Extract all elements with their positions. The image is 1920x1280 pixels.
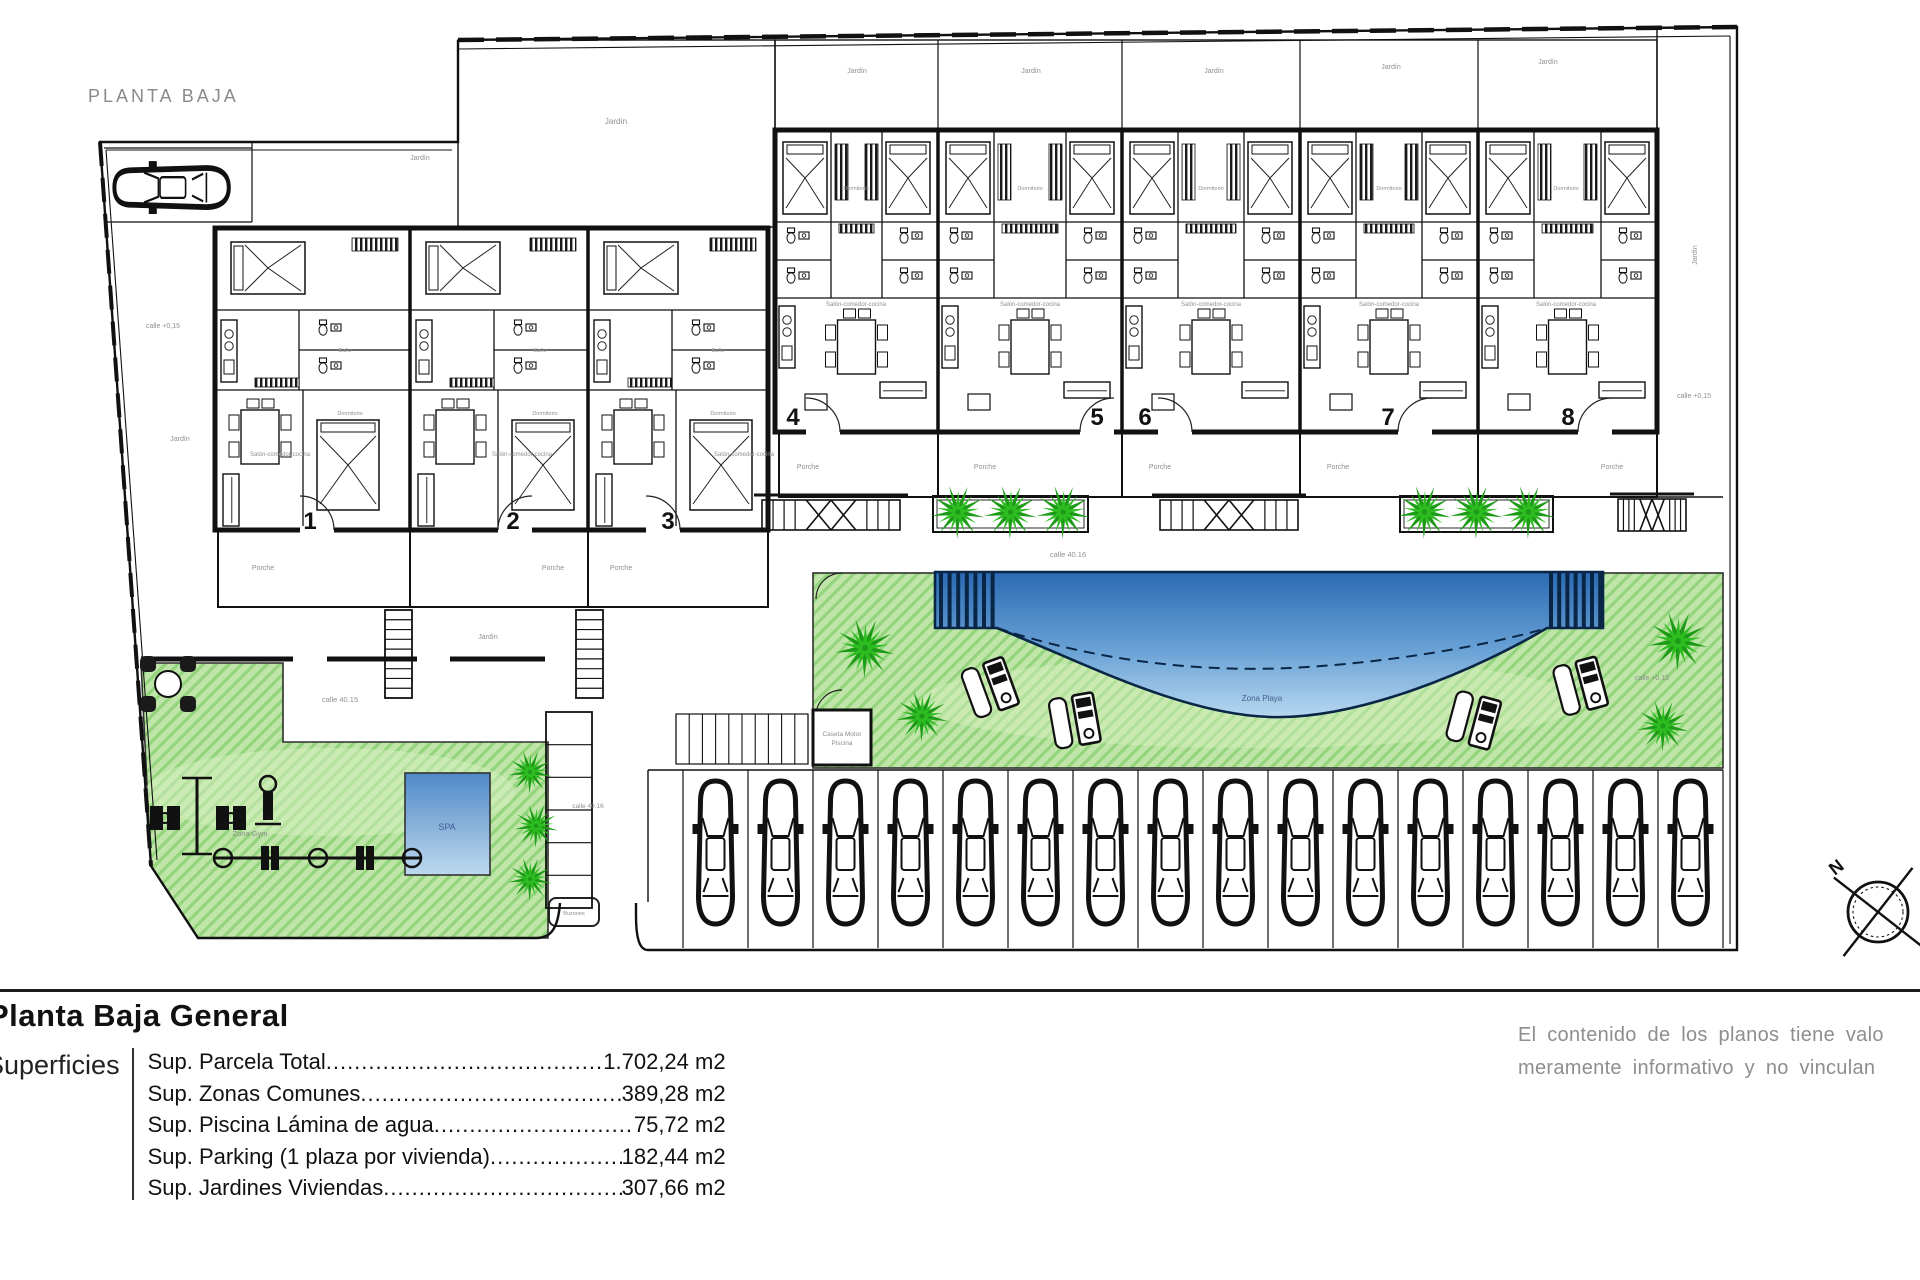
plan-label: Porche [1149, 464, 1171, 471]
parking-car [1408, 781, 1454, 924]
floor-plan-page: { "header": { "plan_label": "PLANTA BAJA… [0, 0, 1920, 1280]
parking-car [693, 781, 739, 924]
plan-label: calle +0,15 [1635, 675, 1669, 682]
unit-number: 7 [1381, 404, 1394, 431]
plan-label: Dormitorio [1017, 186, 1042, 192]
parking-area [648, 770, 1723, 948]
plan-label: Porche [542, 565, 564, 572]
plan-label: Jardín [1204, 68, 1224, 75]
surface-row-value: 307,66 m2 [622, 1172, 726, 1204]
surface-row: Sup. Parcela Total 1.702,24 m2 [148, 1046, 726, 1078]
parking-car [1473, 781, 1519, 924]
plan-title: PLANTA BAJA [88, 86, 239, 107]
plan-label: Salón-comedor-cocina [826, 302, 887, 308]
plan-label: Zona Gym [232, 829, 267, 838]
surface-row-value: 75,72 m2 [634, 1109, 726, 1141]
surface-rows: Sup. Parcela Total 1.702,24 m2 Sup. Zona… [148, 1044, 726, 1204]
caseta-label-2: Piscina [832, 740, 853, 747]
pool-machinery-room: Caseta Motor Piscina [813, 710, 871, 765]
parking-car [1148, 781, 1194, 924]
plan-label: calle 40.16 [572, 803, 604, 810]
unit-number: 8 [1561, 404, 1574, 431]
parking-car [888, 781, 934, 924]
surface-row-value: 182,44 m2 [622, 1141, 726, 1173]
disclaimer-text: El contenido de los planos tiene valo me… [1518, 1019, 1920, 1085]
surface-row: Sup. Piscina Lámina de agua 75,72 m2 [148, 1109, 726, 1141]
surface-row-value: 389,28 m2 [622, 1078, 726, 1110]
surface-row-label: Sup. Parcela Total [148, 1046, 326, 1078]
surface-row-label: Sup. Parking (1 plaza por vivienda) [148, 1141, 490, 1173]
dot-leader [490, 1141, 622, 1173]
unit-number: 4 [786, 404, 800, 431]
compass-icon: N [1799, 833, 1920, 990]
legend-separator [0, 989, 1920, 992]
plan-label: Salón-comedor-cocina [1000, 302, 1061, 308]
buzones-label: Buzones [563, 911, 585, 917]
plan-label: Jardín [605, 117, 627, 126]
dot-leader [326, 1046, 604, 1078]
plan-label: Porche [252, 565, 274, 572]
plan-label: Jardín [170, 436, 190, 443]
plan-label: calle +0,15 [1677, 393, 1711, 400]
plan-label: Dormitorio [1198, 186, 1223, 192]
plan-label: Jardín [1692, 245, 1699, 265]
parking-car [1343, 781, 1389, 924]
plan-label: Dormitorio [1553, 186, 1578, 192]
surface-row: Sup. Parking (1 plaza por vivienda) 182,… [148, 1141, 726, 1173]
plan-label: Jardín [410, 155, 430, 162]
plan-label: Jardín [1538, 59, 1558, 66]
disclaimer-line-1: El contenido de los planos tiene valo [1518, 1019, 1920, 1052]
plan-label: Porche [974, 464, 996, 471]
plan-label: Baño [712, 348, 725, 354]
parking-car [1668, 781, 1714, 924]
plan-label: Porche [797, 464, 819, 471]
dot-leader [360, 1078, 621, 1110]
disclaimer-line-2: meramente informativo y no vinculan [1518, 1052, 1920, 1085]
plan-label: Porche [1601, 464, 1623, 471]
parking-car [1538, 781, 1584, 924]
surface-row-value: 1.702,24 m2 [603, 1046, 725, 1078]
caseta-label-1: Caseta Motor [822, 731, 862, 738]
legend-title: Planta Baja General [0, 998, 289, 1034]
plan-label: Jardín [478, 634, 498, 641]
parking-car [953, 781, 999, 924]
parking-car [1278, 781, 1324, 924]
legend-divider [132, 1048, 134, 1200]
plan-label: Jardín [1021, 68, 1041, 75]
floor-plan-canvas: Zona Playa SPA Caseta Motor Piscina Buzo… [0, 0, 1920, 991]
unit-number: 1 [303, 508, 316, 535]
plan-label: Dormitorio [1376, 186, 1401, 192]
parking-car [1213, 781, 1259, 924]
plan-label: Salón-comedor-cocina [492, 452, 553, 458]
parking-car [1018, 781, 1064, 924]
plan-label: Salón-comedor-cocina [250, 452, 311, 458]
parking-car [758, 781, 804, 924]
spa-label: SPA [438, 822, 455, 832]
surface-row-label: Sup. Jardines Viviendas [148, 1172, 384, 1204]
floor-plan-svg: Zona Playa SPA Caseta Motor Piscina Buzo… [0, 0, 1920, 991]
plan-label: Dormitorio [843, 186, 868, 192]
plan-label: Salón-comedor-cocina [714, 452, 775, 458]
plan-label: Jardín [1381, 64, 1401, 71]
plan-label: Salón-comedor-cocina [1536, 302, 1597, 308]
plan-label: calle 40.15 [322, 695, 358, 704]
parking-car [1083, 781, 1129, 924]
unit-number: 2 [506, 508, 519, 535]
surface-row: Sup. Jardines Viviendas 307,66 m2 [148, 1172, 726, 1204]
unit-number: 3 [661, 508, 674, 535]
dot-leader [383, 1172, 621, 1204]
dot-leader [434, 1109, 634, 1141]
surface-row-label: Sup. Piscina Lámina de agua [148, 1109, 434, 1141]
plan-label: Porche [1327, 464, 1349, 471]
parking-car [1603, 781, 1649, 924]
plan-label: calle 40.16 [1050, 550, 1086, 559]
plan-label: Dormitorio [337, 411, 362, 417]
surface-row: Sup. Zonas Comunes 389,28 m2 [148, 1078, 726, 1110]
plan-label: Salón-comedor-cocina [1359, 302, 1420, 308]
plan-label: Jardín [847, 68, 867, 75]
plan-label: Baño [339, 348, 352, 354]
surface-row-label: Sup. Zonas Comunes [148, 1078, 361, 1110]
pool-zone-label: Zona Playa [1242, 694, 1283, 703]
plan-label: Porche [610, 565, 632, 572]
plan-label: Salón-comedor-cocina [1181, 302, 1242, 308]
unit-number: 6 [1138, 404, 1151, 431]
parking-car [823, 781, 869, 924]
plan-label: Dormitorio [532, 411, 557, 417]
plan-label: Dormitorio [710, 411, 735, 417]
unit-number: 5 [1090, 404, 1103, 431]
spa-pool: SPA [405, 773, 490, 875]
plan-label: calle +0,15 [146, 323, 180, 330]
plan-label: Baño [534, 348, 547, 354]
surface-legend: Superficies Sup. Parcela Total 1.702,24 … [0, 1044, 726, 1204]
surface-section-label: Superficies [0, 1044, 120, 1204]
north-label: N [1825, 855, 1848, 879]
